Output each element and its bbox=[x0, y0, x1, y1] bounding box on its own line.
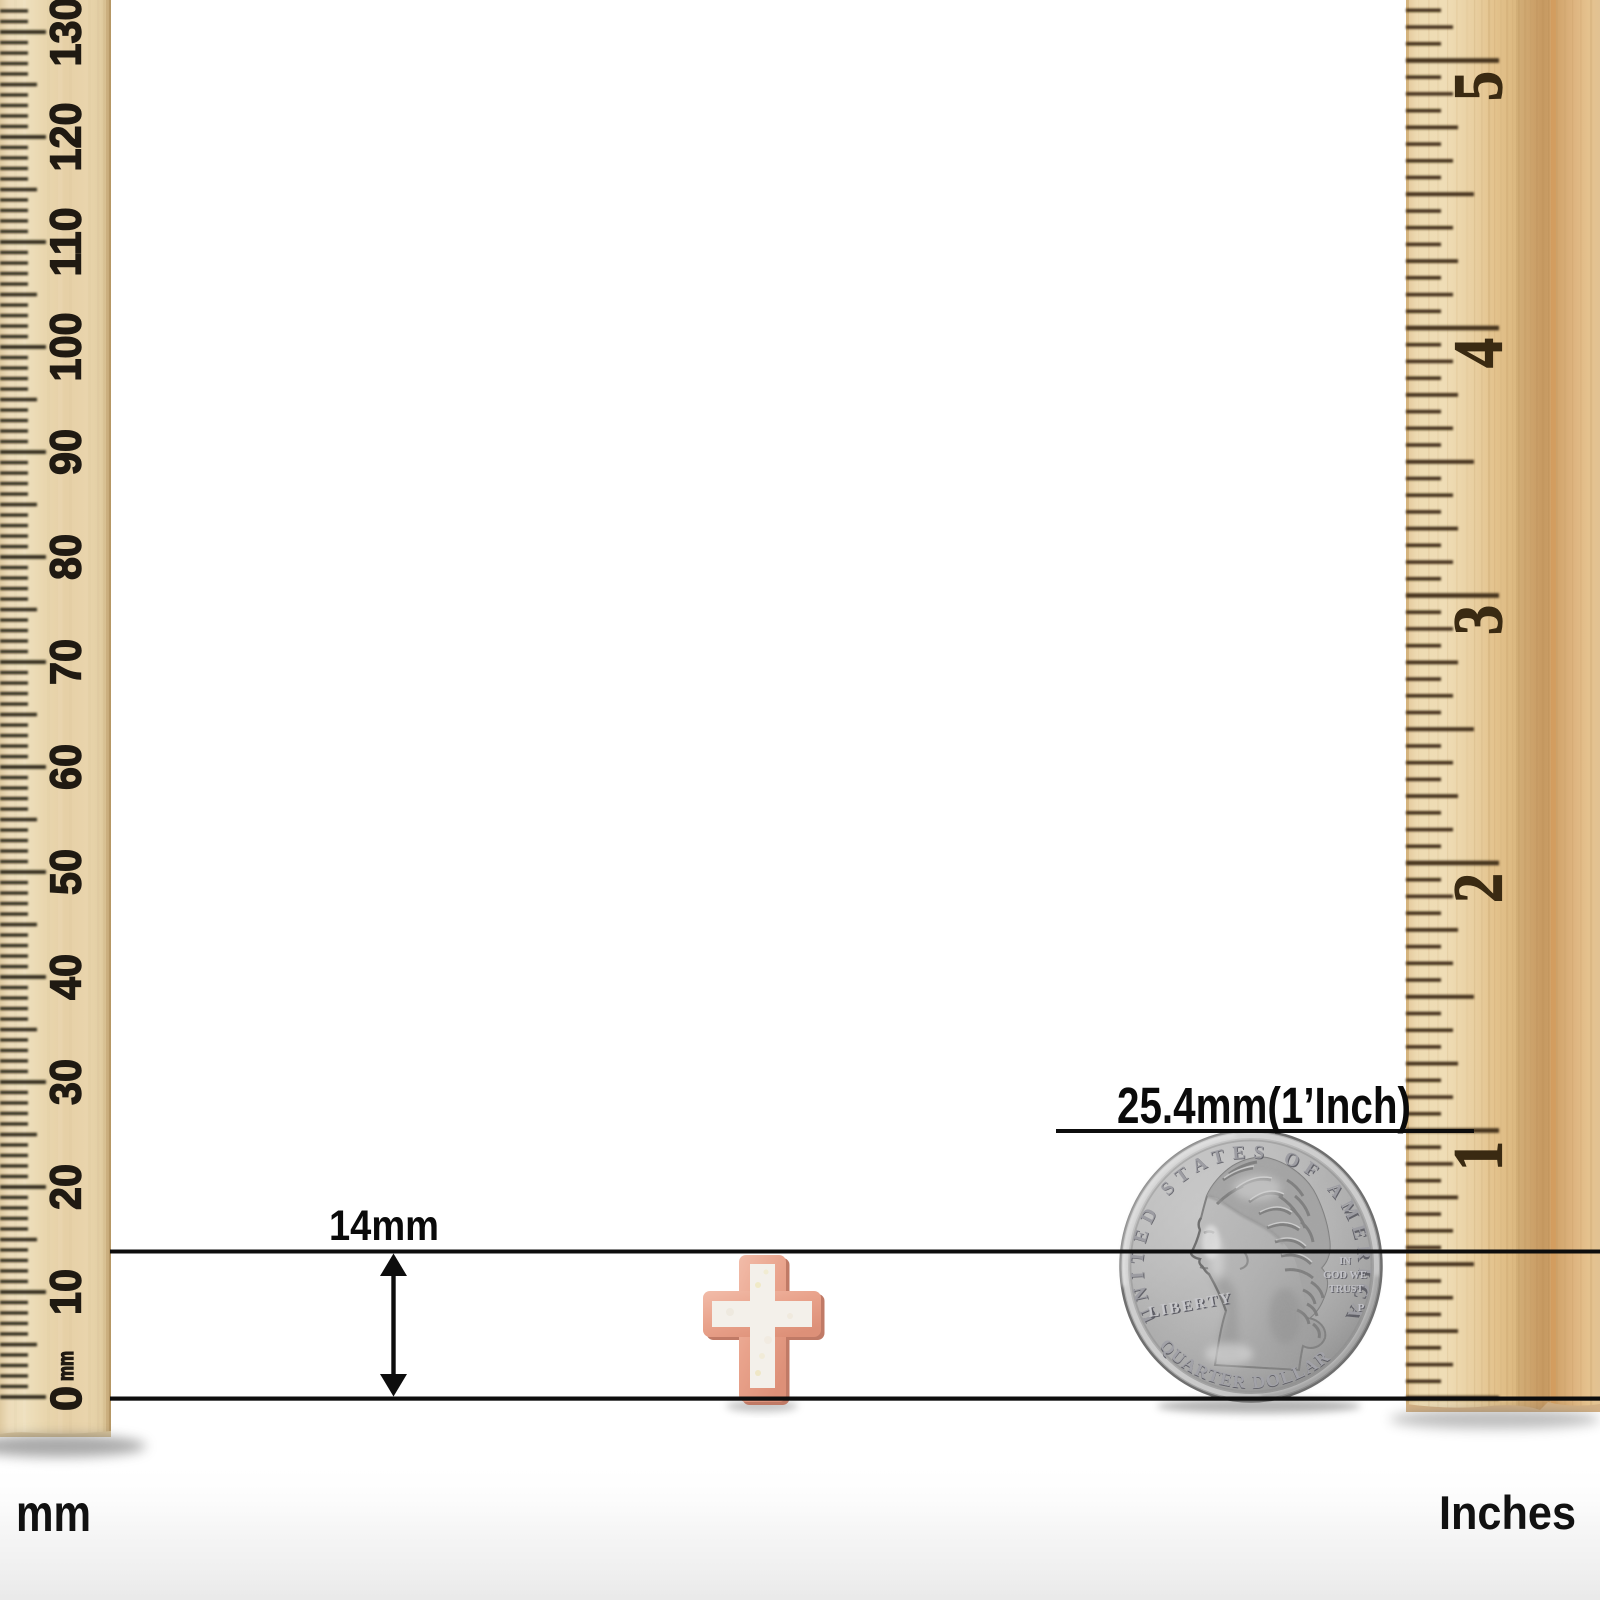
svg-text:30: 30 bbox=[42, 1059, 91, 1105]
svg-text:120: 120 bbox=[42, 103, 91, 172]
svg-text:1: 1 bbox=[1441, 1141, 1518, 1171]
svg-text:5: 5 bbox=[1441, 71, 1518, 101]
svg-text:40: 40 bbox=[42, 954, 91, 1000]
svg-text:20: 20 bbox=[42, 1164, 91, 1210]
svg-text:10: 10 bbox=[42, 1269, 91, 1315]
svg-text:14mm: 14mm bbox=[329, 1202, 439, 1250]
svg-text:110: 110 bbox=[42, 208, 91, 277]
svg-text:25.4mm(1’Inch): 25.4mm(1’Inch) bbox=[1117, 1077, 1411, 1134]
svg-text:90: 90 bbox=[42, 429, 91, 475]
svg-text:4: 4 bbox=[1441, 338, 1518, 368]
svg-text:Inches: Inches bbox=[1439, 1486, 1576, 1539]
svg-text:100: 100 bbox=[42, 313, 91, 382]
svg-text:80: 80 bbox=[42, 534, 91, 580]
svg-text:130: 130 bbox=[42, 0, 91, 67]
svg-text:mm: mm bbox=[16, 1485, 91, 1543]
svg-text:2: 2 bbox=[1441, 873, 1518, 903]
svg-text:50: 50 bbox=[42, 849, 91, 895]
svg-text:60: 60 bbox=[42, 744, 91, 790]
svg-text:70: 70 bbox=[42, 639, 91, 685]
svg-text:3: 3 bbox=[1441, 605, 1518, 635]
